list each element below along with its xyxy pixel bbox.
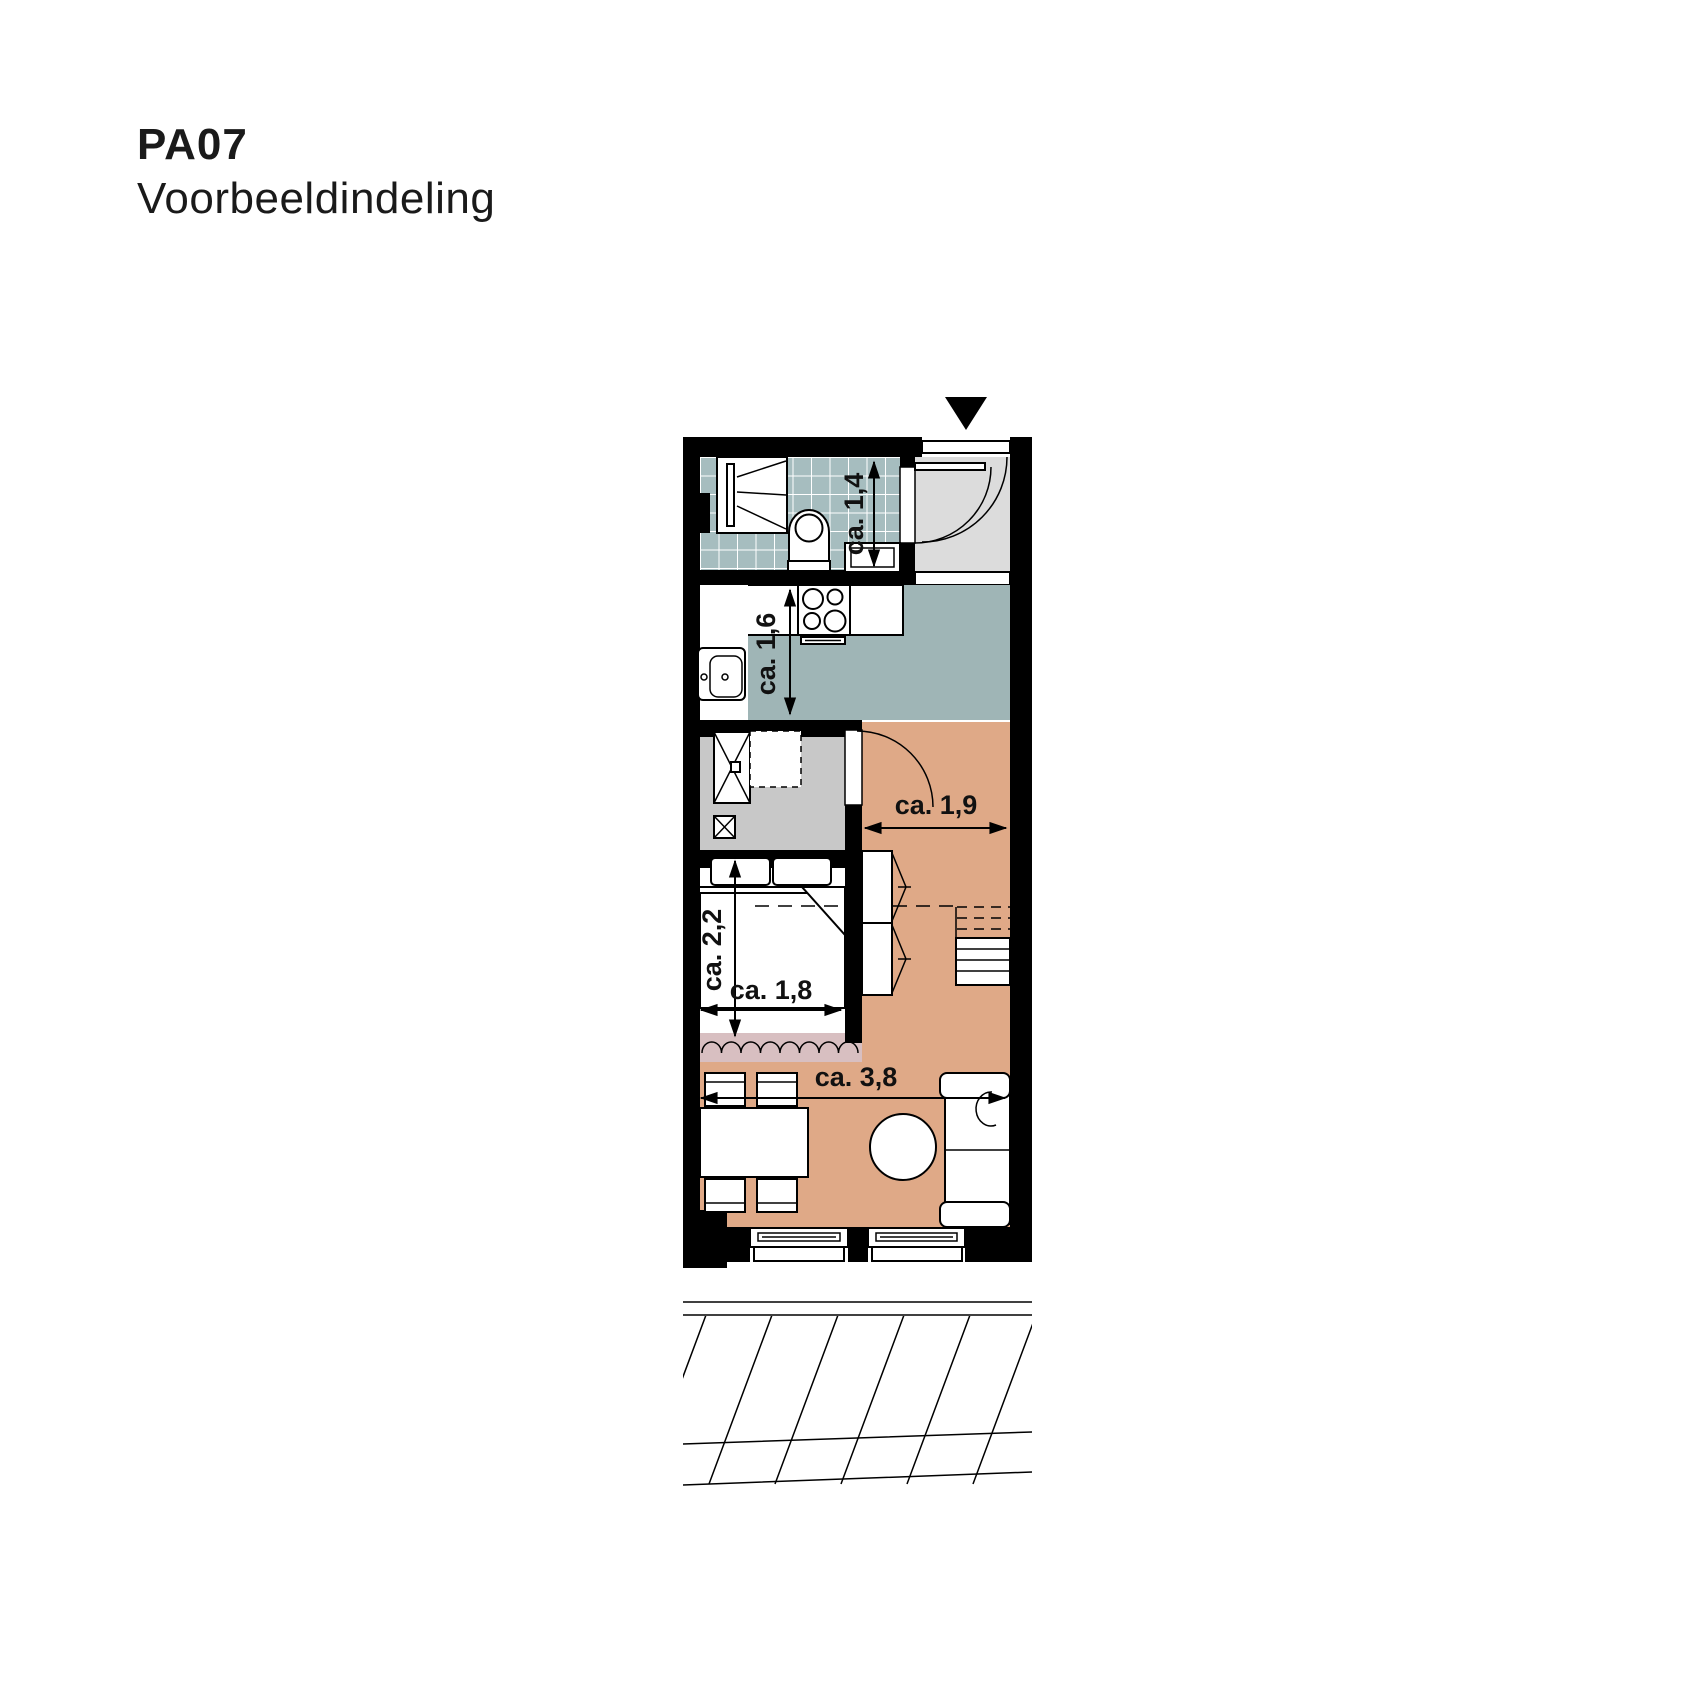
bathroom-door-leaf bbox=[915, 463, 985, 470]
top-wall bbox=[683, 437, 922, 457]
balcony-paving-hatch bbox=[643, 1315, 1036, 1485]
dining-table bbox=[700, 1108, 808, 1177]
burner-small-2 bbox=[804, 613, 820, 629]
floor-plan-page: PA07 Voorbeeldindeling bbox=[0, 0, 1707, 1707]
bathroom-door-opening bbox=[900, 467, 915, 543]
sofa-armrest-top bbox=[940, 1073, 1010, 1098]
bed-pillow-right bbox=[773, 858, 831, 885]
dim-label-kitchen: ca. 1,6 bbox=[751, 613, 781, 696]
dining-chair-bottom-right bbox=[757, 1179, 797, 1212]
window-left-sill bbox=[754, 1247, 844, 1261]
dim-label-bedroom-width: ca. 1,8 bbox=[730, 975, 813, 1005]
dining-chair-bottom-left bbox=[705, 1179, 745, 1212]
bottom-wall-middle bbox=[848, 1227, 868, 1262]
coffee-table bbox=[870, 1114, 936, 1180]
dim-label-bathroom: ca. 1,4 bbox=[839, 473, 869, 556]
dim-label-hall: ca. 1,9 bbox=[895, 790, 978, 820]
wardrobe-unit-bottom bbox=[862, 923, 892, 995]
bedroom-right-wall bbox=[845, 868, 862, 1043]
toilet-bowl bbox=[796, 515, 823, 542]
hall-floor bbox=[915, 457, 1010, 572]
bottom-wall-right bbox=[965, 1227, 1032, 1262]
right-wall bbox=[1010, 437, 1032, 1262]
bathroom-hall-wall-bottom bbox=[900, 543, 915, 572]
entrance-door-leaf bbox=[922, 441, 1010, 453]
burner-large-1 bbox=[803, 589, 823, 609]
balcony bbox=[643, 1302, 1036, 1485]
left-wall bbox=[683, 437, 700, 1217]
dim-label-living: ca. 3,8 bbox=[815, 1062, 898, 1092]
bottom-wall-left bbox=[683, 1227, 750, 1262]
dining-chair-top-left bbox=[705, 1073, 745, 1106]
burner-small-1 bbox=[828, 590, 843, 605]
bathroom-hall-wall-top bbox=[900, 457, 915, 467]
utility-cabinet-knob bbox=[731, 762, 740, 772]
hall-threshold bbox=[915, 572, 1010, 585]
window-right-sill bbox=[872, 1247, 962, 1261]
bed-pillow-left bbox=[711, 858, 770, 885]
dim-label-bedroom-depth: ca. 2,2 bbox=[697, 909, 727, 992]
toilet-cistern bbox=[788, 561, 830, 571]
dining-chair-top-right bbox=[757, 1073, 797, 1106]
sofa-armrest-bottom bbox=[940, 1202, 1010, 1227]
bathroom-plumbing-stub bbox=[683, 493, 710, 533]
shower-screen bbox=[727, 464, 734, 526]
floor-plan-drawing: ca. 1,4 ca. 1,6 ca. 1,9 ca. 2,2 ca. 1,8 … bbox=[0, 0, 1707, 1707]
boiler-dashed-outline bbox=[750, 731, 801, 787]
burner-large-2 bbox=[825, 611, 846, 632]
utility-door-opening bbox=[845, 730, 862, 805]
radiator-body bbox=[956, 938, 1010, 985]
wardrobe-unit-top bbox=[862, 851, 892, 923]
entrance-marker-icon bbox=[945, 397, 987, 430]
